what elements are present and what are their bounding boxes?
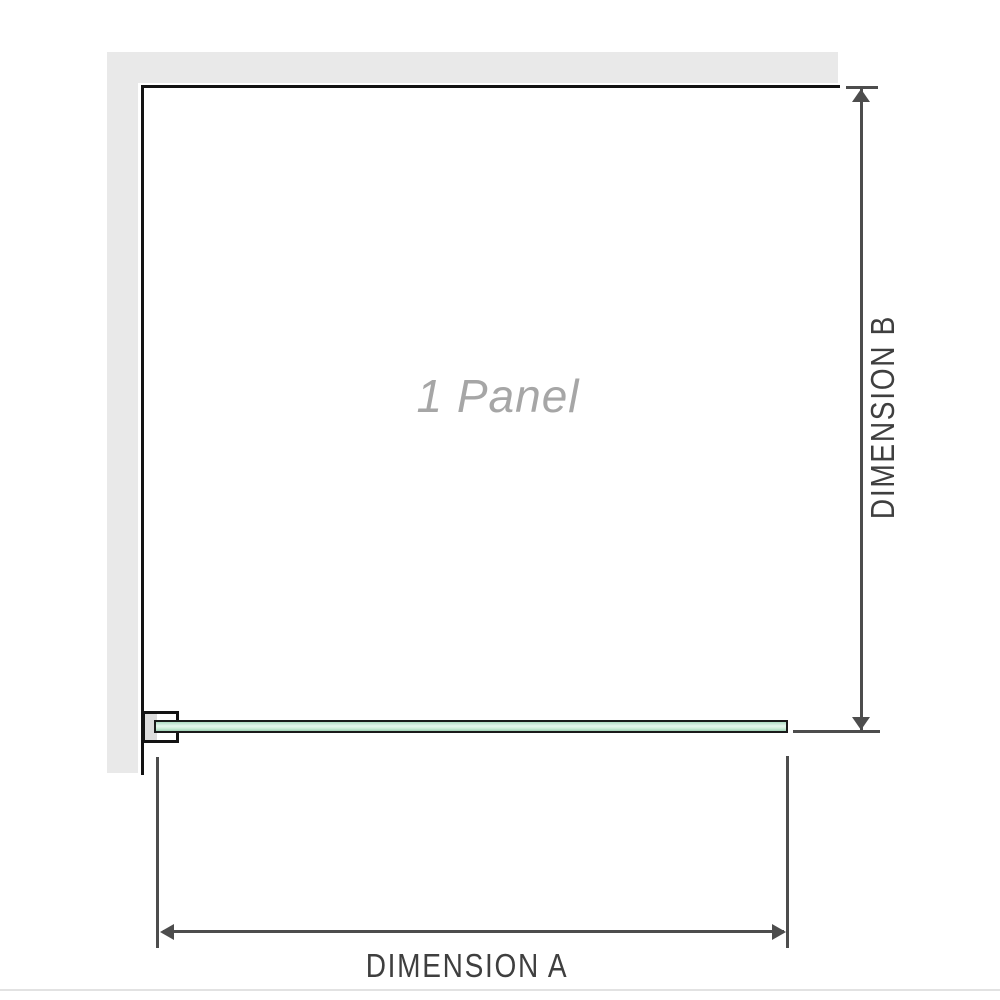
dimension-a-left-extension [156,757,159,948]
dimension-b-bottom-tick [793,730,880,733]
dimension-a-line [163,930,784,933]
frame-left-line [141,85,144,775]
dimension-a-right-extension [786,756,789,948]
arrow-down-icon [852,717,870,730]
frame-top-line [141,85,840,88]
dimension-b-label: DIMENSION B [864,315,902,519]
wall-top [107,52,838,83]
arrow-right-icon [772,924,786,940]
arrow-left-icon [160,924,174,940]
dimension-a-label: DIMENSION A [366,947,569,985]
bottom-divider-line [0,989,1000,991]
panel-count-label: 1 Panel [416,369,579,423]
dimension-b-line [860,89,863,730]
arrow-up-icon [852,89,870,102]
glass-panel [154,720,788,733]
panel-dimension-diagram: 1 Panel DIMENSION B DIMENSION A [0,0,1000,1000]
wall-left [107,52,138,773]
